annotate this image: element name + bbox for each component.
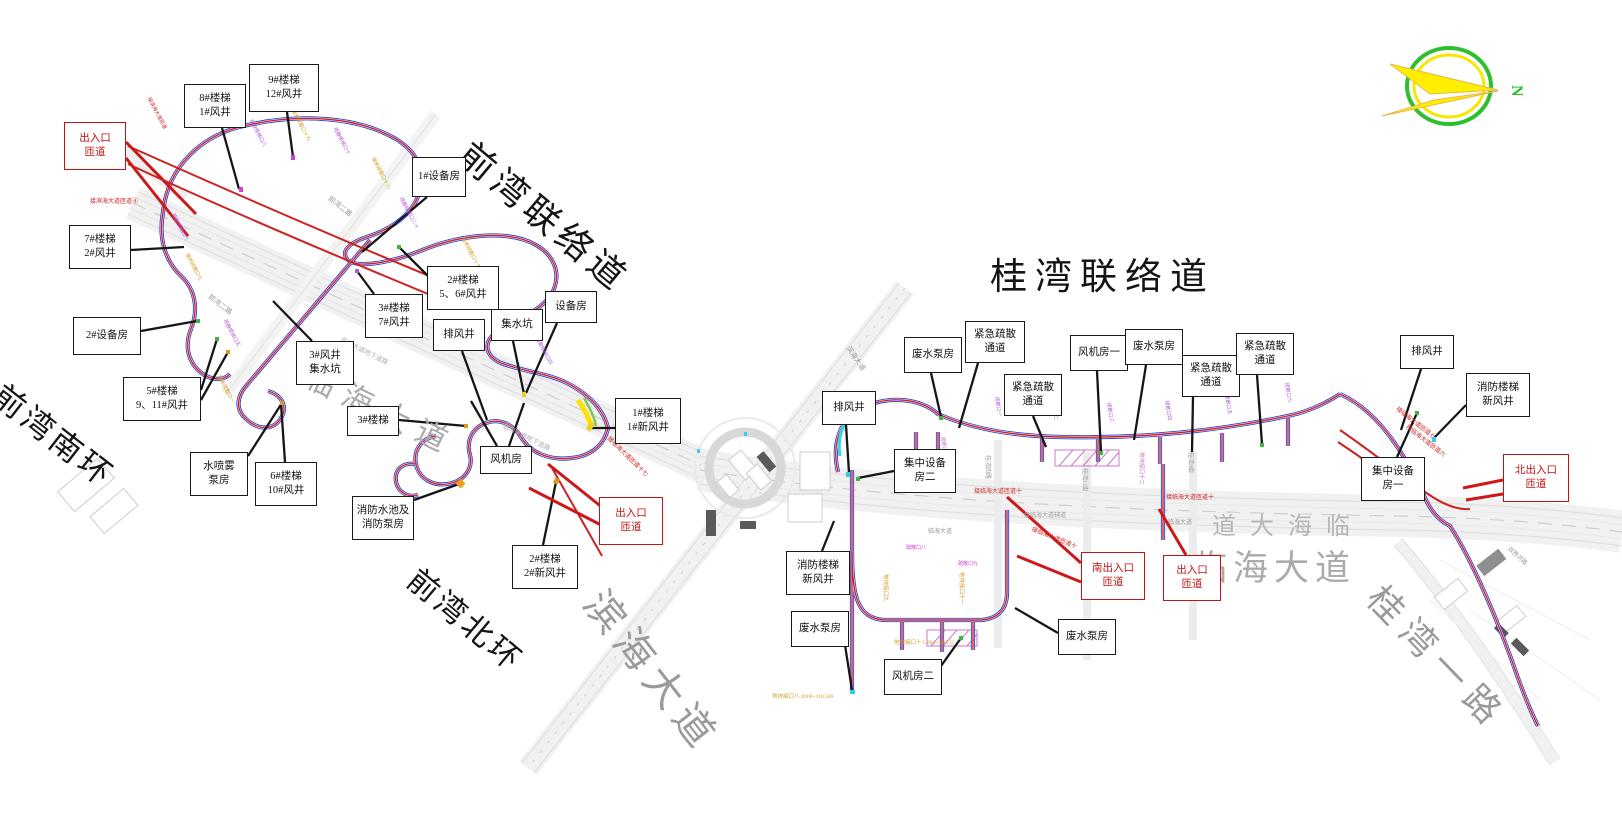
- micro-annotation: 疏散楼梯口五: [222, 318, 242, 348]
- micro-annotation: 维修疏散口一: [216, 374, 236, 404]
- stair2-vent5-6-label: 2#楼梯 5、6#风井: [427, 266, 499, 310]
- micro-annotation: 滨海大道: [844, 344, 868, 373]
- micro-annotation: 双界河路: [1506, 544, 1530, 567]
- micro-annotation: 接临海大道匝道十: [1166, 492, 1214, 501]
- micro-annotation: 地块接口九: [882, 574, 890, 602]
- portal-marker: [291, 155, 295, 160]
- portal-marker: [215, 337, 219, 341]
- micro-annotation: 疏散楼梯口六: [170, 212, 190, 242]
- road-label-guiwan-first-road: 桂湾一路: [1357, 572, 1522, 740]
- exhaust-shaft-label-mid: 排风井: [822, 391, 876, 425]
- micro-annotation: 桂湾9街: [1187, 452, 1196, 473]
- micro-annotation: 疏散口五: [1223, 394, 1233, 415]
- micro-annotation: 维修疏散口十八: [370, 156, 393, 190]
- fan-room1-label: 风机房一: [1070, 335, 1128, 371]
- emergency-passage-label-2: 紧急疏散 通道: [1004, 374, 1062, 416]
- micro-annotation: 地块接口十一: [958, 572, 966, 605]
- micro-annotation: 桂湾11街: [1081, 468, 1090, 492]
- title-guiwan-connector: 桂湾联络道: [990, 246, 1215, 300]
- sump-label: 集水坑: [491, 309, 543, 341]
- stair2-newvent2-label: 2#楼梯 2#新风井: [512, 545, 578, 589]
- exhaust-shaft-label-right: 排风井: [1400, 335, 1454, 369]
- exhaust-shaft-label-left: 排风井: [433, 319, 485, 351]
- micro-annotation: 地块接口十二: [1138, 452, 1146, 485]
- exit-ramp-label-center: 出入口 匝道: [599, 497, 663, 545]
- micro-annotation: 疏散楼梯口八: [248, 118, 268, 148]
- central-equip-room1-label: 集中设备 房一: [1361, 457, 1425, 501]
- micro-annotation: 接临海大道辅道: [1024, 510, 1066, 519]
- portal-marker: [397, 245, 401, 249]
- micro-annotation: 维修疏散口十九: [290, 108, 313, 142]
- wastewater-pump-label-2: 废水泵房: [1125, 329, 1183, 365]
- title-qianwan-south-ring: 前湾南环: [0, 372, 125, 497]
- stair1-newvent1-label: 1#楼梯 1#新风井: [615, 398, 681, 444]
- micro-annotation: 疏散楼梯口十: [332, 126, 352, 156]
- stair3-label: 3#楼梯: [347, 406, 399, 436]
- portal-marker: [744, 432, 747, 436]
- south-exit-ramp-label: 南出入口 匝道: [1081, 552, 1145, 600]
- fire-stair-newvent-label-ne: 消防楼梯 新风井: [1466, 373, 1530, 417]
- portal-marker: [1260, 443, 1264, 447]
- north-exit-ramp-label: 北出入口 匝道: [1503, 454, 1569, 502]
- emergency-passage-label-1: 紧急疏散 通道: [965, 321, 1025, 363]
- fire-pool-pump-label: 消防水池及 消防泵房: [352, 496, 414, 540]
- portal-marker: [939, 416, 943, 420]
- portal-marker: [239, 187, 243, 192]
- micro-annotation: 地块接口十 L2K1+340.22: [894, 638, 954, 646]
- micro-annotation: 疏散口四: [1163, 400, 1173, 421]
- portal-marker: [697, 449, 700, 453]
- stair8-vent1-label: 8#楼梯 1#风井: [184, 84, 246, 128]
- annotation-overlay: 出入口 匝道8#楼梯 1#风井9#楼梯 12#风井1#设备房7#楼梯 2#风井2…: [0, 0, 1622, 828]
- micro-annotation: 接滨海大道匝道④: [90, 196, 138, 205]
- micro-annotation: 临海大道: [928, 526, 952, 535]
- stair5-vent9-11-label: 5#楼梯 9、11#风井: [123, 377, 201, 421]
- stair9-vent12-label: 9#楼梯 12#风井: [249, 64, 319, 112]
- exit-ramp-label-east: 出入口 匝道: [1163, 555, 1221, 601]
- micro-annotation: 维修疏散口七: [184, 252, 204, 282]
- vent3-sump-label: 3#风井 集水坑: [296, 341, 354, 385]
- micro-annotation: 接滨海大道匝道: [146, 96, 169, 130]
- fire-stair-newvent-label-sw: 消防楼梯 新风井: [786, 551, 850, 595]
- portal-marker: [196, 319, 200, 323]
- portal-marker: [1415, 411, 1419, 415]
- wastewater-pump-label-4: 废水泵房: [1058, 619, 1116, 655]
- micro-annotation: 前湾二路: [206, 292, 234, 317]
- exit-ramp-label-west: 出入口 匝道: [64, 122, 126, 170]
- portal-marker: [856, 477, 860, 481]
- portal-marker: [586, 421, 595, 431]
- stair3-vent7-label: 3#楼梯 7#风井: [365, 294, 423, 338]
- portal-marker: [846, 472, 850, 477]
- micro-annotation: 疏散口八: [906, 544, 926, 551]
- equipment-room1-label: 1#设备房: [412, 157, 466, 197]
- portal-marker: [1432, 437, 1436, 442]
- portal-marker: [226, 350, 230, 354]
- water-spray-pump-label: 水喷雾 泵房: [190, 452, 248, 496]
- stair6-vent10-label: 6#楼梯 10#风井: [255, 462, 317, 506]
- micro-annotation: 前湾二路: [326, 194, 354, 219]
- portal-marker: [553, 477, 560, 485]
- road-label-binhai-avenue-large: 滨海大道: [572, 576, 736, 763]
- micro-annotation: 接临海大道匝道十: [1031, 524, 1079, 550]
- wastewater-pump-label-1: 废水泵房: [904, 337, 962, 373]
- micro-annotation: 桂湾四路: [984, 455, 993, 479]
- equipment-room2-label: 2#设备房: [73, 317, 141, 355]
- fan-room2-label: 风机房二: [884, 659, 942, 695]
- micro-annotation: 临海大道: [1168, 517, 1192, 526]
- fan-room-label: 风机房: [480, 446, 532, 474]
- portal-marker: [522, 392, 526, 397]
- micro-annotation: 接临海大道匝道十: [974, 486, 1022, 495]
- portal-marker: [456, 479, 466, 489]
- portal-marker: [355, 269, 359, 273]
- portal-marker: [850, 690, 855, 694]
- micro-annotation: 疏散口六: [1283, 382, 1293, 403]
- stair7-vent2-label: 7#楼梯 2#风井: [69, 225, 131, 269]
- equipment-room-label: 设备房: [545, 291, 597, 323]
- micro-annotation: 疏散楼梯口二十: [398, 196, 421, 230]
- tunnel-plan-drawing: N 出入口 匝道8#楼梯 1#风井9#楼梯 12#风井1#设备房7#楼梯 2#风…: [0, 0, 1622, 828]
- portal-marker: [959, 636, 963, 640]
- portal-marker: [280, 401, 284, 405]
- road-label-linhai-avenue-reversed: 道大海临: [1212, 506, 1364, 541]
- emergency-passage-label-4: 紧急疏散 通道: [1236, 333, 1294, 375]
- micro-annotation: 疏散口一: [993, 396, 1003, 417]
- wastewater-pump-label-3: 废水泵房: [791, 611, 849, 647]
- portal-marker: [1099, 451, 1103, 455]
- emergency-passage-label-3: 紧急疏散 通道: [1182, 355, 1240, 397]
- micro-annotation: 疏散口九: [958, 560, 978, 567]
- micro-annotation: 地块接口八 Z600+118.500: [772, 692, 833, 700]
- portal-marker: [464, 424, 468, 428]
- micro-annotation: 疏散口三: [1105, 402, 1115, 423]
- central-equip-room2-label: 集中设备 房二: [894, 449, 956, 493]
